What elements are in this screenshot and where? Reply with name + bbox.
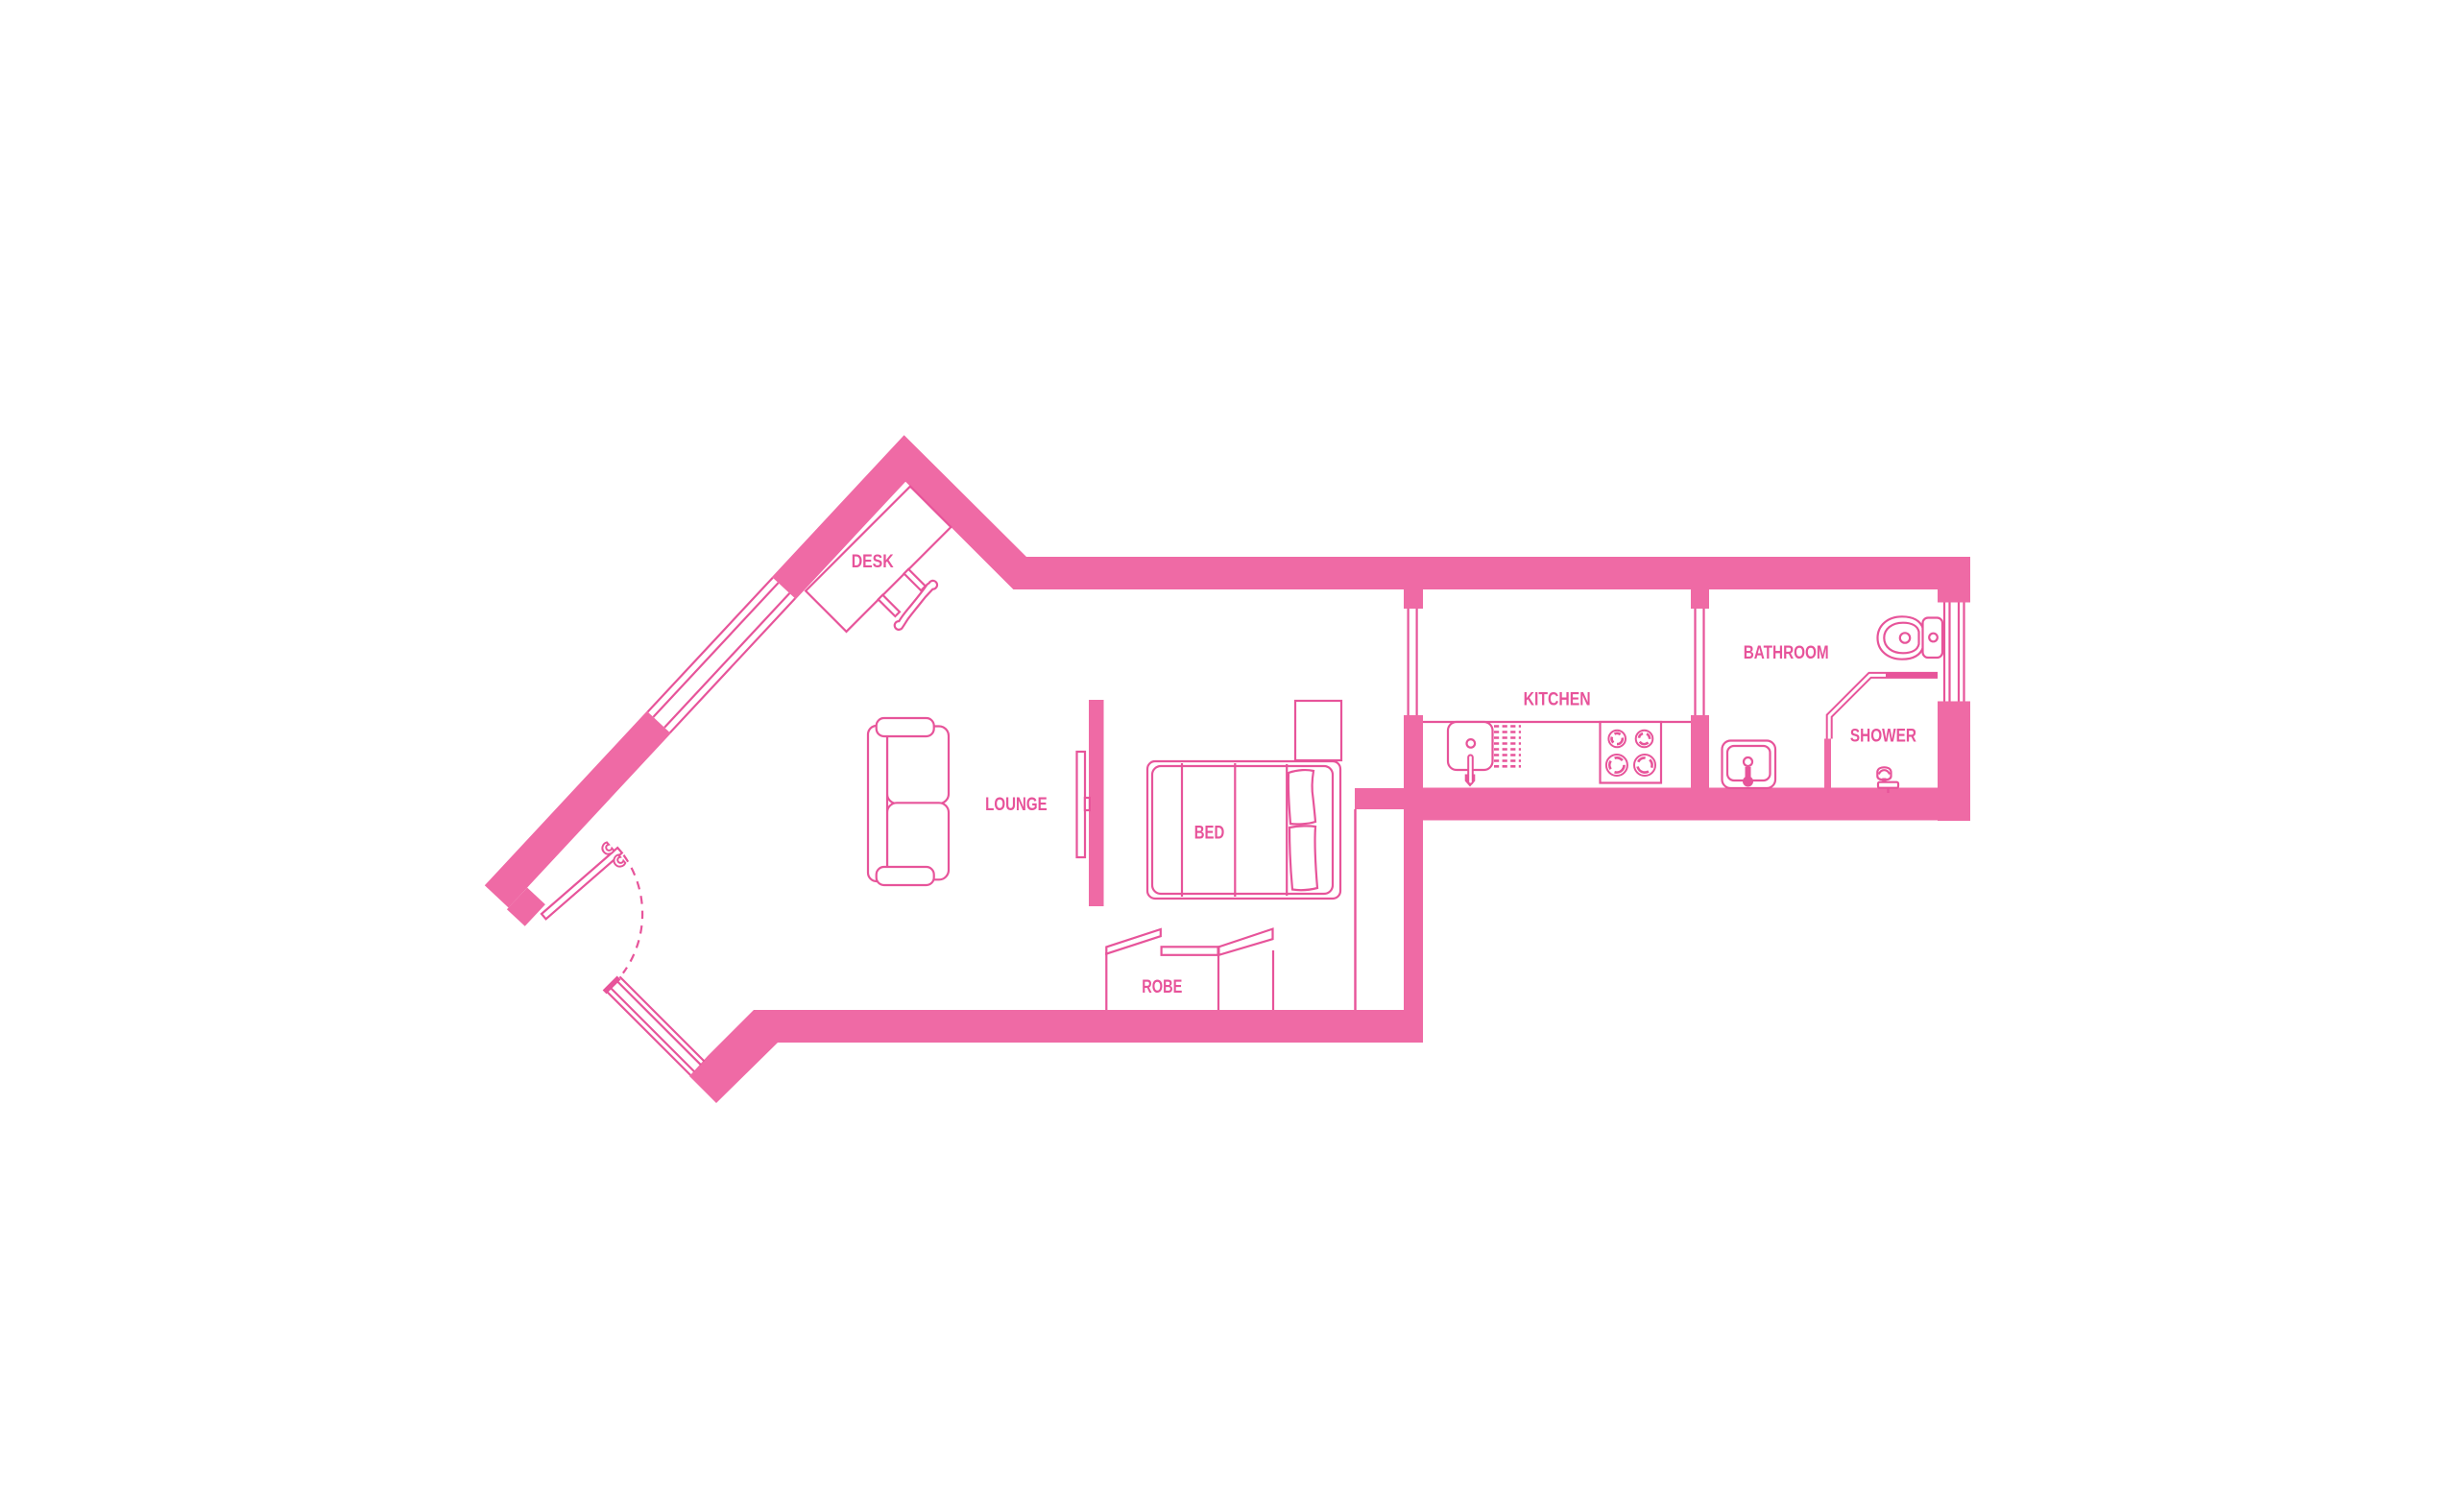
svg-text:BED: BED [1194,823,1225,844]
svg-text:KITCHEN: KITCHEN [1524,688,1591,709]
svg-text:ROBE: ROBE [1142,976,1182,997]
svg-text:SHOWER: SHOWER [1850,726,1916,747]
svg-text:BATHROOM: BATHROOM [1744,642,1829,663]
svg-text:LOUNGE: LOUNGE [985,794,1048,815]
svg-text:DESK: DESK [852,551,894,572]
